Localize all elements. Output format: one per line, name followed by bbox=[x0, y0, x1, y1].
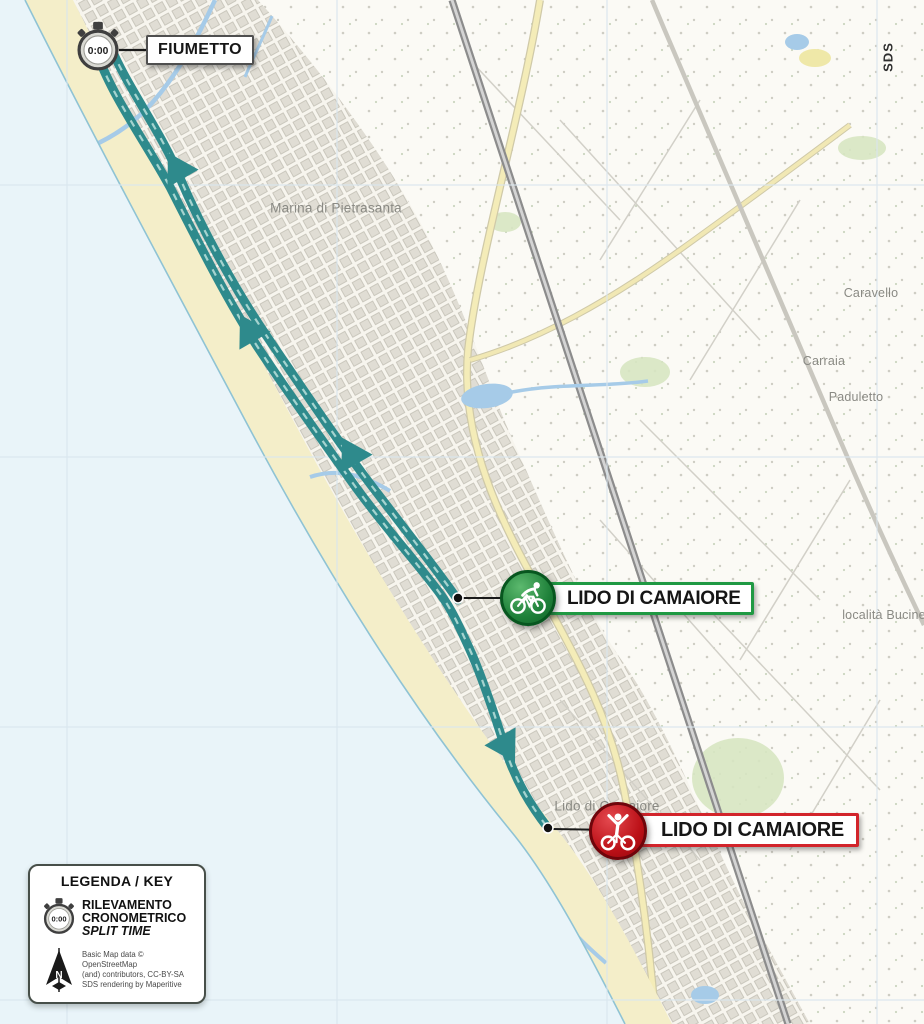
attribution-line1: Basic Map data © OpenStreetMap bbox=[82, 950, 198, 970]
route-map: 0:00 bbox=[0, 0, 924, 1024]
fiumetto-label-text: FIUMETTO bbox=[158, 41, 242, 59]
map-label-paduletto: Paduletto bbox=[829, 390, 884, 404]
legend-split-line3: SPLIT TIME bbox=[82, 925, 186, 938]
start-cyclist-icon bbox=[508, 578, 548, 618]
legend-stopwatch-icon bbox=[38, 895, 80, 941]
start-label-text: LIDO DI CAMAIORE bbox=[567, 588, 741, 610]
map-label-marina: Marina di Pietrasanta bbox=[270, 201, 402, 216]
legend-title: LEGENDA / KEY bbox=[36, 873, 198, 889]
finish-point-dot bbox=[543, 823, 553, 833]
legend-split-line2: CRONOMETRICO bbox=[82, 912, 186, 925]
attribution-line2: (and) contributors, CC-BY-SA bbox=[82, 970, 198, 980]
map-label-caravello: Caravello bbox=[844, 286, 899, 300]
attribution-text: Basic Map data © OpenStreetMap (and) con… bbox=[82, 950, 198, 990]
finish-badge bbox=[589, 802, 647, 860]
finish-cyclist-icon bbox=[597, 810, 639, 852]
north-arrow-icon: N bbox=[43, 947, 75, 993]
sds-watermark: SDS bbox=[881, 42, 896, 72]
legend-split-line1: RILEVAMENTO bbox=[82, 899, 186, 912]
field-patch bbox=[799, 49, 831, 67]
finish-label-text: LIDO DI CAMAIORE bbox=[661, 819, 844, 842]
map-label-carraia: Carraia bbox=[803, 354, 845, 368]
legend-split-row: RILEVAMENTO CRONOMETRICO SPLIT TIME bbox=[36, 895, 198, 941]
start-label: LIDO DI CAMAIORE bbox=[540, 582, 754, 615]
start-badge bbox=[500, 570, 556, 626]
map-label-bucine: località Bucine bbox=[842, 608, 924, 622]
fiumetto-split-label: FIUMETTO bbox=[146, 35, 254, 65]
north-letter: N bbox=[55, 970, 62, 981]
finish-label: LIDO DI CAMAIORE bbox=[632, 813, 859, 847]
attribution-line3: SDS rendering by Maperitive bbox=[82, 980, 198, 990]
start-point-dot bbox=[453, 593, 463, 603]
legend-attribution-row: N Basic Map data © OpenStreetMap (and) c… bbox=[36, 947, 198, 993]
legend-split-text: RILEVAMENTO CRONOMETRICO SPLIT TIME bbox=[82, 899, 186, 938]
legend-panel: LEGENDA / KEY RILEVAMENTO CRONOMETRICO S… bbox=[28, 864, 206, 1004]
